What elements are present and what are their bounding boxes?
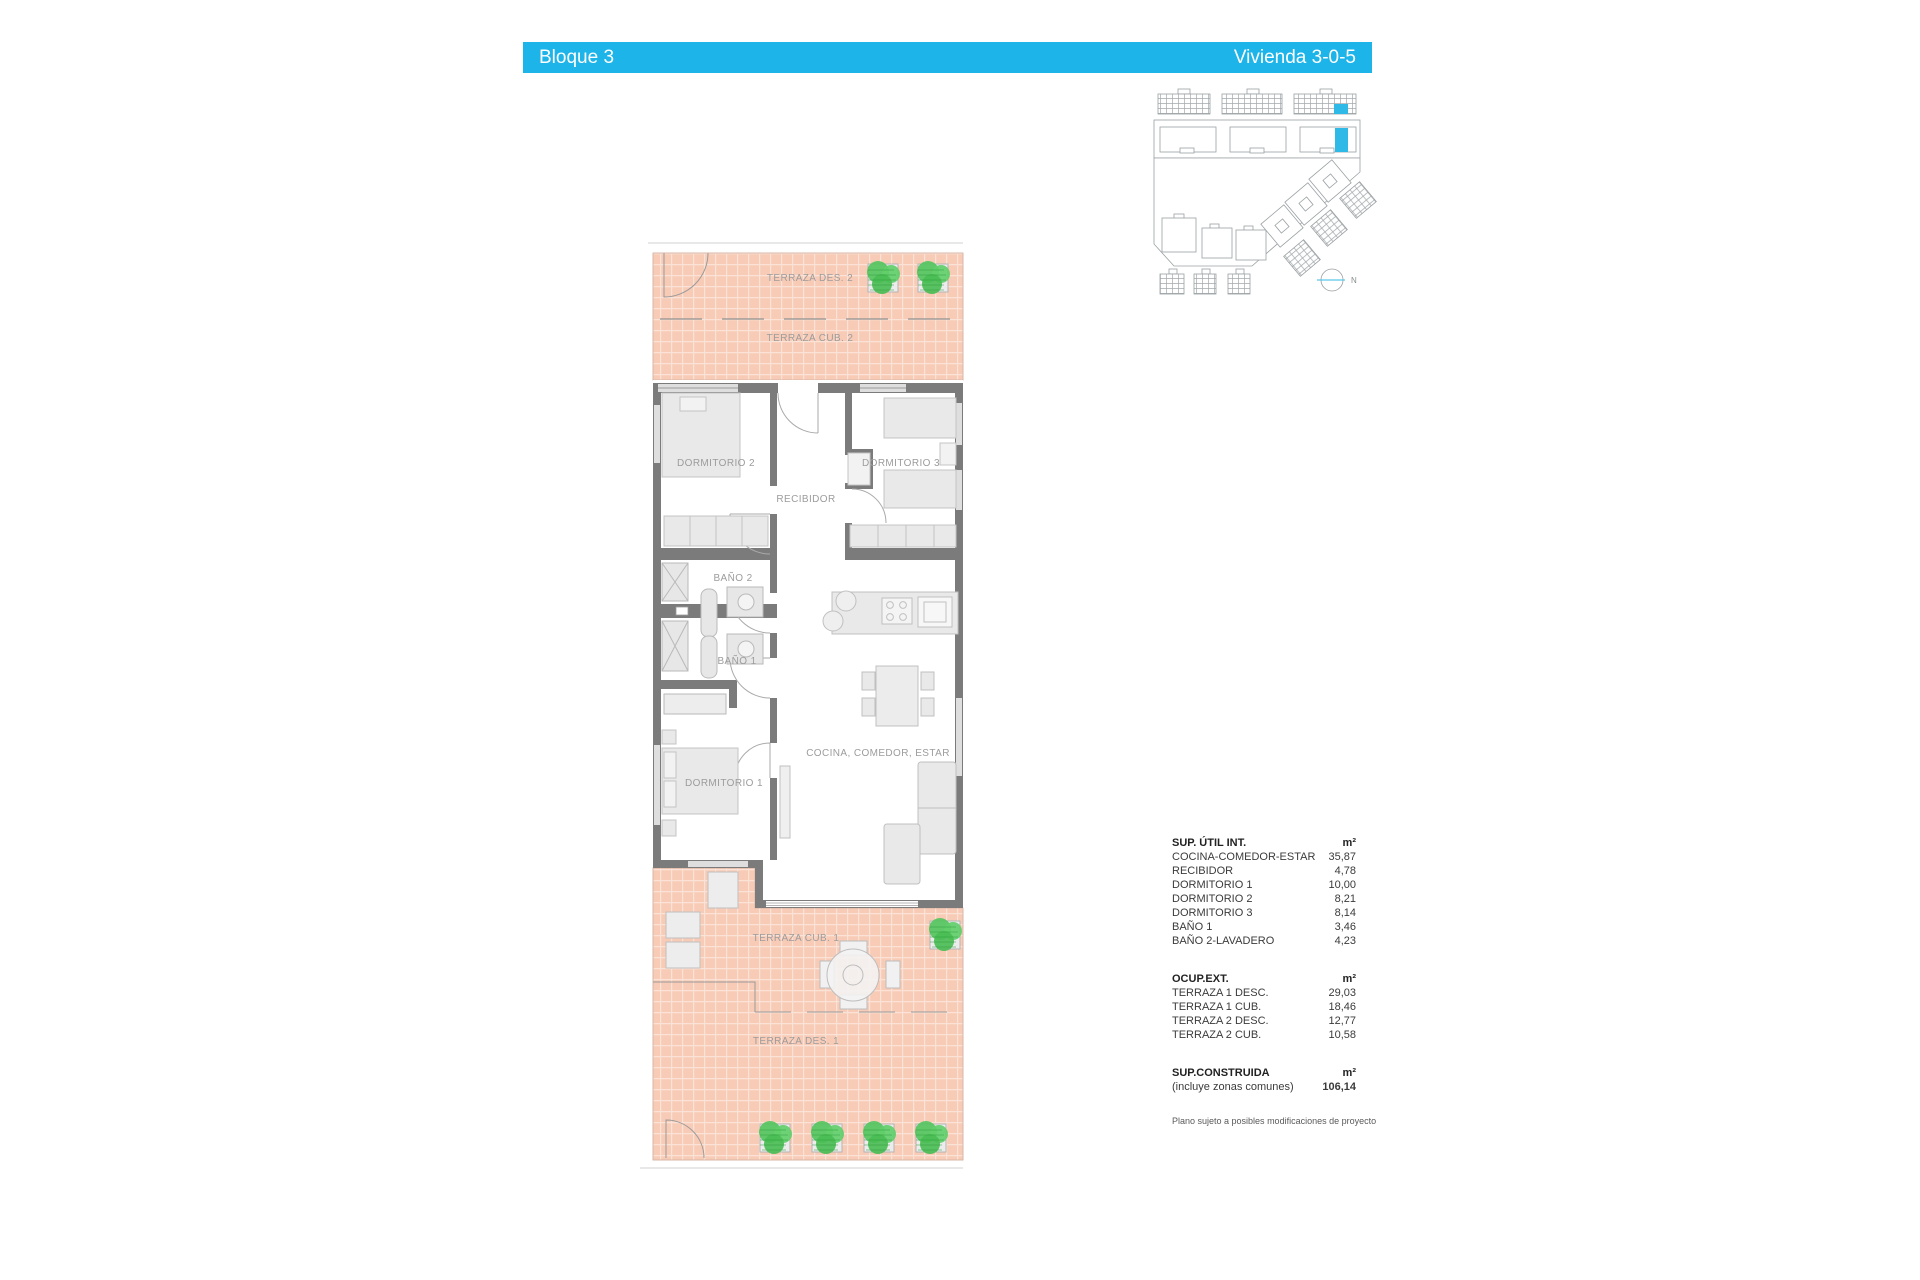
site-highlight-unit (1335, 128, 1348, 152)
table-row: TERRAZA 2 DESC.12,77 (1172, 1014, 1356, 1028)
site-plan: N (1130, 78, 1420, 313)
site-plan-drawing (1154, 89, 1376, 294)
room-label-dormitorio-3: DORMITORIO 3 (862, 458, 940, 469)
table-row: TERRAZA 2 CUB.10,58 (1172, 1028, 1356, 1042)
site-highlight-roof (1334, 104, 1348, 114)
room-label-recibidor: RECIBIDOR (776, 494, 835, 505)
area-tables: SUP. ÚTIL INT. m² COCINA-COMEDOR-ESTAR35… (1172, 836, 1356, 1094)
room-label-cocina: COCINA, COMEDOR, ESTAR (806, 748, 950, 759)
table-row: TERRAZA 1 CUB.18,46 (1172, 1000, 1356, 1014)
table-construida-header: SUP.CONSTRUIDA m² (1172, 1066, 1356, 1080)
table-row: TERRAZA 1 DESC.29,03 (1172, 986, 1356, 1000)
terrace-1: TERRAZA CUB. 1 TERRAZA DES. 1 (640, 868, 963, 1168)
footnote: Plano sujeto a posibles modificaciones d… (1172, 1116, 1376, 1126)
plant-icon (915, 1121, 948, 1154)
plant-icon (863, 1121, 896, 1154)
table-row: (incluye zonas comunes) 106,14 (1172, 1080, 1356, 1094)
room-label-dormitorio-1: DORMITORIO 1 (685, 778, 763, 789)
block-title: Bloque 3 (539, 47, 614, 69)
terrace-2: TERRAZA DES. 2 TERRAZA CUB. 2 (653, 253, 963, 380)
table-row: BAÑO 13,46 (1172, 920, 1356, 934)
table-util-header: SUP. ÚTIL INT. m² (1172, 836, 1356, 850)
room-label-terraza-des-2: TERRAZA DES. 2 (767, 273, 853, 284)
plant-icon (867, 261, 900, 294)
table-row: DORMITORIO 28,21 (1172, 892, 1356, 906)
table-row: BAÑO 2-LAVADERO4,23 (1172, 934, 1356, 948)
table-row: COCINA-COMEDOR-ESTAR35,87 (1172, 850, 1356, 864)
room-label-terraza-des-1: TERRAZA DES. 1 (753, 1036, 839, 1047)
plant-icon (811, 1121, 844, 1154)
room-label-terraza-cub-2: TERRAZA CUB. 2 (767, 333, 854, 344)
compass-north-label: N (1351, 276, 1357, 285)
room-label-terraza-cub-1: TERRAZA CUB. 1 (753, 933, 840, 944)
plant-icon (929, 918, 962, 951)
floor-plan: TERRAZA DES. 2 TERRAZA CUB. 2 (640, 190, 980, 1200)
room-label-bano-1: BAÑO 1 (717, 654, 756, 667)
floorplan-page: Bloque 3 Vivienda 3-0-5 (0, 0, 1920, 1280)
table-row: DORMITORIO 110,00 (1172, 878, 1356, 892)
table-row: RECIBIDOR4,78 (1172, 864, 1356, 878)
room-label-dormitorio-2: DORMITORIO 2 (677, 458, 755, 469)
plant-icon (759, 1121, 792, 1154)
unit-title: Vivienda 3-0-5 (1234, 47, 1356, 69)
plant-icon (917, 261, 950, 294)
table-row: DORMITORIO 38,14 (1172, 906, 1356, 920)
table-ext-header: OCUP.EXT. m² (1172, 972, 1356, 986)
header-bar: Bloque 3 Vivienda 3-0-5 (523, 42, 1372, 73)
room-label-bano-2: BAÑO 2 (713, 571, 752, 584)
duct (676, 607, 688, 615)
